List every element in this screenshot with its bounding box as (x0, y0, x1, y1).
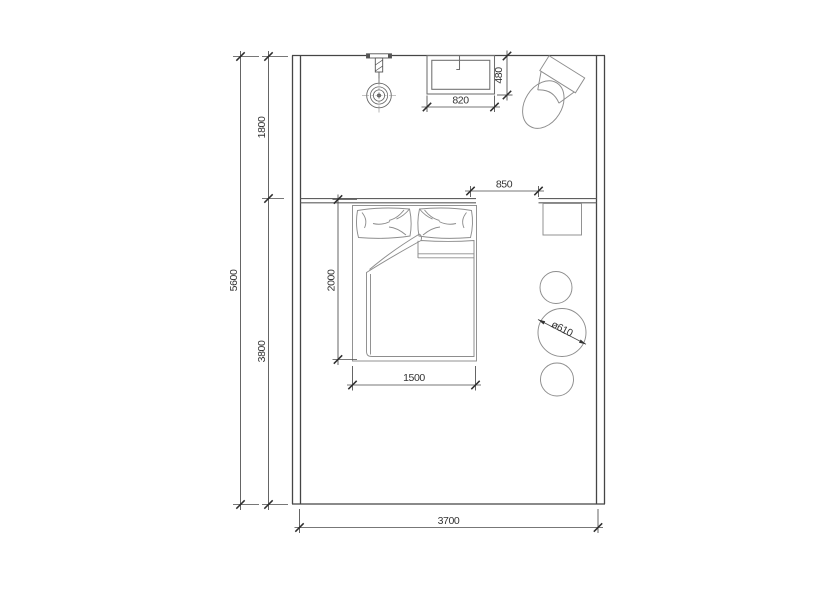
stool-bottom (541, 363, 574, 396)
floor-plan-drawing: 5600 1800 3800 3700 1500 2000 (0, 0, 837, 592)
toilet-icon (512, 56, 585, 138)
dim-total-depth: 5600 (228, 51, 259, 510)
pillow-left (356, 208, 411, 238)
wall-right (597, 56, 605, 505)
partition-right-segment (539, 199, 597, 203)
dim-label-480: 480 (493, 67, 505, 84)
dim-label-5600: 5600 (228, 269, 240, 291)
dim-room-width: 3700 (295, 509, 604, 533)
duvet-fold-edge (370, 234, 420, 270)
bed (353, 206, 477, 362)
window-latch-icon (456, 56, 459, 70)
dim-label-820: 820 (452, 95, 469, 107)
partition-left-segment (301, 199, 477, 203)
dim-label-1800: 1800 (256, 116, 268, 138)
dim-label-3700: 3700 (438, 515, 460, 527)
duvet (367, 234, 475, 357)
pendant-light-icon (362, 54, 396, 113)
stool-top (540, 272, 572, 304)
dim-opening-width: 850 (465, 179, 544, 198)
dim-window-depth: 480 (493, 51, 513, 101)
bed-frame (353, 206, 477, 362)
dim-label-3800: 3800 (256, 340, 268, 362)
dim-window-width: 820 (422, 95, 501, 113)
window-box (427, 56, 495, 95)
dim-label-2000: 2000 (326, 269, 338, 291)
dim-zone-depths: 1800 3800 (256, 51, 288, 510)
dim-stool-diameter: ø610 (538, 319, 586, 345)
room-walls (292, 56, 605, 505)
floor-plan-canvas: 5600 1800 3800 3700 1500 2000 (0, 0, 837, 592)
window-box-inner (432, 60, 490, 89)
dim-bed-width: 1500 (347, 366, 481, 391)
dim-label-850: 850 (496, 179, 513, 191)
wall-left (293, 56, 301, 505)
pillow-right (418, 208, 473, 238)
side-table (543, 204, 582, 236)
dim-label-1500: 1500 (403, 372, 425, 384)
window-box-outer (427, 56, 495, 95)
